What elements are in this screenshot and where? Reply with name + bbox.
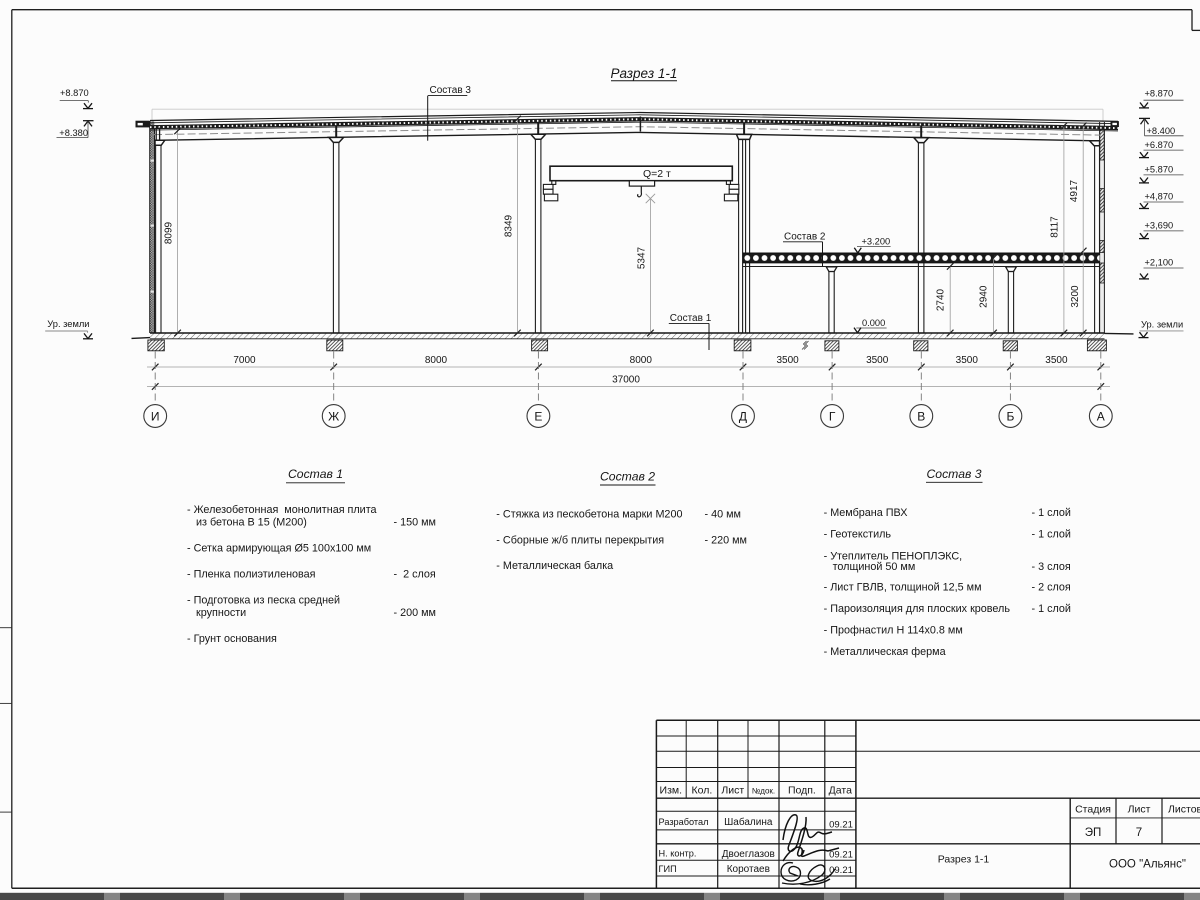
svg-text:- Профнастил Н 114х0.8 мм: - Профнастил Н 114х0.8 мм: [824, 625, 963, 637]
svg-text:Подп.: Подп.: [788, 785, 816, 797]
svg-text:А: А: [1097, 409, 1105, 423]
svg-text:ООО "Альянс": ООО "Альянс": [1109, 858, 1186, 870]
svg-text:толщиной 50 мм: толщиной 50 мм: [833, 561, 916, 573]
svg-text:+8.870: +8.870: [60, 88, 89, 98]
svg-text:Состав 2: Состав 2: [600, 470, 655, 484]
svg-text:Кол.: Кол.: [692, 785, 713, 797]
svg-text:3500: 3500: [866, 355, 889, 366]
svg-text:Состав 1: Состав 1: [288, 467, 343, 481]
svg-text:Изм.: Изм.: [660, 785, 683, 797]
svg-text:Е: Е: [534, 409, 542, 423]
svg-text:2740: 2740: [936, 288, 947, 311]
svg-text:Лист: Лист: [1128, 803, 1151, 815]
svg-text:- Грунт основания: - Грунт основания: [187, 633, 277, 645]
svg-text:- Лист ГВЛВ, толщиной 12,5 мм: - Лист ГВЛВ, толщиной 12,5 мм: [824, 582, 982, 594]
svg-text:+6.870: +6.870: [1145, 140, 1174, 150]
svg-text:Стадия: Стадия: [1075, 803, 1111, 815]
svg-text:- 2 слоя: - 2 слоя: [394, 569, 436, 581]
svg-text:+4,870: +4,870: [1145, 192, 1174, 202]
svg-text:Г: Г: [829, 409, 836, 423]
svg-text:- Пленка полиэтиленовая: - Пленка полиэтиленовая: [187, 569, 316, 581]
svg-text:Разработал: Разработал: [659, 817, 709, 827]
svg-text:- Сетка армирующая Ø5 100х100: - Сетка армирующая Ø5 100х100 мм: [187, 543, 371, 555]
svg-text:8000: 8000: [630, 355, 653, 366]
svg-text:- 1 слой: - 1 слой: [1032, 603, 1071, 615]
svg-text:2940: 2940: [979, 285, 990, 308]
svg-text:+8.380: +8.380: [59, 128, 88, 138]
svg-text:Дата: Дата: [829, 785, 852, 797]
svg-text:Ур. земли: Ур. земли: [1141, 320, 1183, 330]
svg-text:- Металлическая ферма: - Металлическая ферма: [824, 646, 946, 658]
svg-text:Листов: Листов: [1168, 803, 1200, 815]
svg-text:7000: 7000: [233, 355, 256, 366]
svg-text:- 150 мм: - 150 мм: [394, 516, 436, 528]
svg-text:Б: Б: [1006, 409, 1014, 423]
svg-text:- Железобетонная монолитная п: - Железобетонная монолитная плита: [187, 504, 377, 516]
svg-text:+8.400: +8.400: [1147, 126, 1176, 136]
svg-text:+8.870: +8.870: [1145, 88, 1174, 98]
svg-text:+5.870: +5.870: [1145, 165, 1174, 175]
svg-text:8117: 8117: [1050, 216, 1061, 238]
svg-text:4917: 4917: [1069, 179, 1080, 202]
svg-text:- 40 мм: - 40 мм: [705, 508, 741, 520]
svg-text:37000: 37000: [612, 375, 640, 386]
svg-text:И: И: [151, 409, 160, 423]
svg-text:Q=2 т: Q=2 т: [643, 168, 671, 180]
svg-text:ЭП: ЭП: [1085, 827, 1102, 839]
svg-text:из бетона В 15 (М200): из бетона В 15 (М200): [196, 516, 307, 528]
svg-text:3500: 3500: [1045, 355, 1068, 366]
svg-text:- 1 слой: - 1 слой: [1032, 529, 1071, 541]
svg-text:3500: 3500: [956, 355, 979, 366]
svg-text:- Геотекстиль: - Геотекстиль: [824, 529, 892, 541]
svg-text:Двоеглазов: Двоеглазов: [722, 849, 775, 860]
svg-text:- 220 мм: - 220 мм: [705, 535, 747, 547]
svg-text:8000: 8000: [425, 355, 448, 366]
svg-text:3500: 3500: [776, 355, 799, 366]
svg-text:7: 7: [1136, 827, 1142, 839]
svg-text:Состав 3: Состав 3: [430, 85, 472, 96]
svg-text:крупности: крупности: [196, 607, 246, 619]
svg-text:№док.: №док.: [752, 787, 775, 796]
svg-text:3200: 3200: [1070, 285, 1081, 308]
svg-text:Состав 2: Состав 2: [784, 231, 826, 242]
svg-text:Коротаев: Коротаев: [727, 864, 770, 875]
svg-text:Разрез 1-1: Разрез 1-1: [611, 66, 678, 81]
svg-text:- 1 слой: - 1 слой: [1032, 507, 1071, 519]
svg-text:- Сборные ж/б плиты перекрытия: - Сборные ж/б плиты перекрытия: [496, 535, 664, 547]
svg-text:- Подготовка из песка средней: - Подготовка из песка средней: [187, 594, 340, 606]
svg-text:Ж: Ж: [328, 409, 339, 423]
svg-text:Состав 1: Состав 1: [670, 313, 712, 324]
svg-text:09.21: 09.21: [829, 850, 853, 861]
svg-text:- 200 мм: - 200 мм: [394, 607, 436, 619]
svg-text:Состав 3: Состав 3: [927, 467, 982, 481]
svg-text:Шабалина: Шабалина: [724, 816, 773, 828]
svg-text:Ур. земли: Ур. земли: [47, 319, 89, 329]
svg-text:ГИП: ГИП: [659, 864, 677, 874]
svg-text:Разрез 1-1: Разрез 1-1: [938, 853, 990, 865]
svg-text:Д: Д: [739, 409, 747, 423]
svg-text:0.000: 0.000: [862, 318, 885, 328]
svg-text:- Стяжка из пескобетона марки: - Стяжка из пескобетона марки М200: [496, 508, 682, 520]
svg-text:- 3 слоя: - 3 слоя: [1032, 561, 1071, 573]
svg-text:09.21: 09.21: [829, 865, 853, 876]
svg-text:- Пароизоляция для плоских кро: - Пароизоляция для плоских кровель: [824, 603, 1011, 615]
svg-text:+3.200: +3.200: [862, 236, 891, 246]
svg-text:- 2 слоя: - 2 слоя: [1032, 582, 1071, 594]
svg-text:8099: 8099: [164, 221, 175, 244]
svg-text:+3,690: +3,690: [1145, 221, 1174, 231]
svg-text:5347: 5347: [636, 246, 647, 269]
svg-text:В: В: [917, 409, 925, 423]
svg-text:Лист: Лист: [721, 785, 744, 797]
svg-text:Н. контр.: Н. контр.: [659, 849, 697, 859]
svg-text:- Металлическая балка: - Металлическая балка: [496, 560, 613, 572]
svg-text:- Мембрана ПВХ: - Мембрана ПВХ: [824, 507, 908, 519]
svg-text:+2,100: +2,100: [1145, 258, 1174, 268]
svg-text:8349: 8349: [503, 214, 514, 237]
svg-text:09.21: 09.21: [829, 820, 853, 831]
